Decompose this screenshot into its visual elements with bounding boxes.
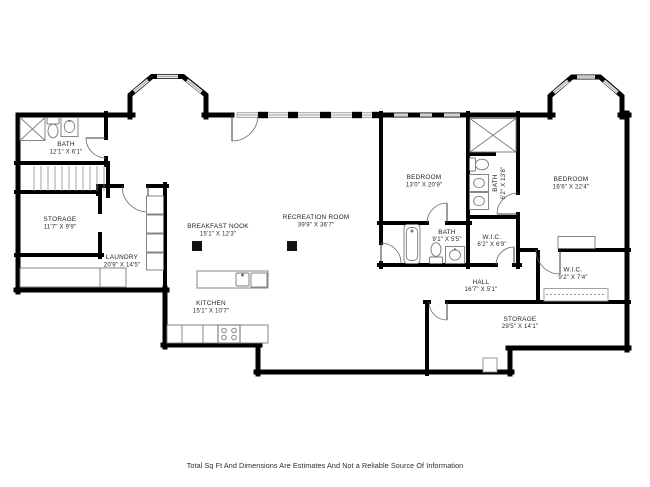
room-dimensions: 9'1" X 5'5": [432, 236, 461, 243]
room-breakfast-nook: BREAKFAST NOOK 15'1" X 12'3": [187, 223, 249, 238]
shower-icon: [20, 118, 45, 141]
column-icon: [192, 241, 202, 251]
structural-columns: [192, 241, 297, 251]
closet-rod-icon: [544, 289, 608, 302]
room-label: BATH: [492, 174, 499, 192]
room-dimensions: 13'0" X 20'9": [406, 182, 442, 189]
room-dimensions: 12'1" X 6'1": [50, 149, 83, 156]
room-dimensions: 9'2" X 7'4": [558, 274, 587, 281]
stairs: [34, 166, 104, 191]
floor-plan-page: BATH 12'1" X 6'1" STORAGE 11'7" X 9'9" L…: [0, 0, 650, 487]
room-bath-upper-left: BATH 12'1" X 6'1": [50, 141, 83, 156]
room-dimensions: 11'7" X 9'9": [44, 224, 76, 231]
room-label: RECREATION ROOM: [283, 214, 350, 221]
room-dimensions: 6'2" X 13'8": [500, 167, 507, 200]
sink-icon: [61, 118, 78, 137]
room-bedroom-left: BEDROOM 13'0" X 20'9": [406, 174, 442, 189]
room-wic-left: W.I.C. 6'2" X 6'9": [477, 234, 506, 248]
room-label: BREAKFAST NOOK: [187, 223, 249, 230]
room-dimensions: 16'6" X 22'4": [553, 184, 589, 191]
room-label: BATH: [57, 141, 75, 148]
room-label: BEDROOM: [554, 176, 589, 183]
room-dimensions: 39'9" X 36'7": [298, 222, 334, 229]
vanity-sink-icon: [470, 193, 489, 210]
room-dimensions: 29'5" X 14'1": [502, 323, 538, 330]
room-bath-ensuite: BATH 6'2" X 13'8": [492, 167, 507, 200]
dresser-icon: [558, 237, 595, 249]
shower-icon: [470, 119, 516, 153]
kitchen-island: [197, 271, 268, 288]
room-label: STORAGE: [504, 316, 537, 323]
toilet-icon: [47, 118, 59, 138]
stove-icon: [218, 325, 240, 343]
room-label: BEDROOM: [407, 174, 442, 181]
column-icon: [287, 241, 297, 251]
interior-walls: [16, 113, 629, 374]
support-post-icon: [483, 358, 497, 372]
room-label: W.I.C.: [483, 234, 502, 241]
bathtub-icon: [404, 225, 420, 264]
room-label: BATH: [438, 229, 456, 236]
laundry-counter: [20, 268, 126, 287]
vanity-sink-icon: [470, 175, 489, 192]
room-dimensions: 6'2" X 6'9": [477, 241, 506, 248]
room-label: W.I.C.: [564, 267, 583, 274]
interior-wall-path: [16, 113, 629, 374]
toilet-icon: [430, 243, 443, 264]
room-label: LAUNDRY: [106, 254, 139, 261]
room-label: STORAGE: [44, 216, 77, 223]
room-hall: HALL 16'7" X 5'1": [465, 279, 498, 293]
room-recreation: RECREATION ROOM 39'9" X 36'7": [283, 214, 350, 229]
room-storage-lower-right: STORAGE 29'5" X 14'1": [502, 316, 538, 330]
room-label: KITCHEN: [196, 300, 226, 307]
room-dimensions: 20'9" X 14'5": [104, 262, 140, 269]
bay-window-walls: [130, 77, 622, 118]
room-storage-upper-left: STORAGE 11'7" X 9'9": [44, 216, 77, 231]
floor-plan-drawing: BATH 12'1" X 6'1" STORAGE 11'7" X 9'9" L…: [0, 0, 650, 487]
room-bedroom-right: BEDROOM 16'6" X 22'4": [553, 176, 589, 191]
room-laundry: LAUNDRY 20'9" X 14'5": [104, 254, 140, 269]
exterior-wall-path: [16, 113, 629, 374]
room-wic-right: W.I.C. 9'2" X 7'4": [558, 267, 587, 282]
sink-icon: [446, 247, 465, 264]
bay-window-glass: [134, 77, 618, 93]
room-kitchen: KITCHEN 15'1" X 10'7": [193, 300, 229, 315]
washer-dryer-icons: [147, 196, 164, 270]
room-dimensions: 15'1" X 12'3": [200, 231, 236, 238]
room-dimensions: 16'7" X 5'1": [465, 286, 498, 293]
stair-treads: [34, 166, 104, 191]
room-bath-middle: BATH 9'1" X 5'5": [432, 229, 461, 243]
room-dimensions: 15'1" X 10'7": [193, 308, 229, 315]
toilet-icon: [470, 158, 489, 171]
bay-window-mullions: [134, 77, 618, 93]
disclaimer-text: Total Sq Ft And Dimensions Are Estimates…: [187, 461, 464, 470]
room-label: HALL: [473, 279, 490, 286]
